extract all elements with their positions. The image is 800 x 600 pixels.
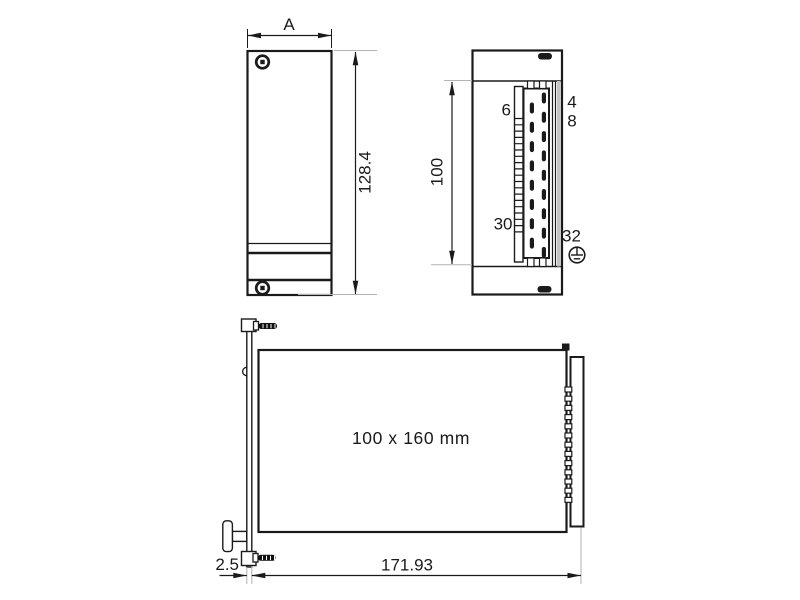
connector-pin-profile xyxy=(565,442,572,447)
connector-pin-profile xyxy=(565,424,572,429)
handle-stem xyxy=(232,531,246,541)
connector-pin-profile xyxy=(565,396,572,401)
connector-pin xyxy=(530,122,534,133)
connector-pin xyxy=(542,228,546,239)
dimension-front-width-label: A xyxy=(283,15,295,34)
front-panel-outline xyxy=(248,51,332,295)
board-size-label: 100 x 160 mm xyxy=(352,428,470,448)
connector-pin xyxy=(530,218,534,229)
pin-label-30: 30 xyxy=(494,215,513,234)
dimension-panel-thickness-label: 2.5 xyxy=(215,555,239,574)
earth-ground-icon xyxy=(569,247,585,263)
connector-mount-tab-bottom-1 xyxy=(528,258,535,267)
connector-pin-profile xyxy=(565,451,572,456)
connector-pin-profile xyxy=(565,405,572,410)
pin-label-6: 6 xyxy=(502,101,511,120)
connector-pin xyxy=(542,208,546,219)
dimension-side-height-label: 100 xyxy=(428,158,447,186)
screw-side-top-icon xyxy=(538,53,552,60)
connector-mount-tab-top-2 xyxy=(540,81,547,89)
dimension-front-width: A xyxy=(248,15,332,48)
extraction-handle xyxy=(223,521,233,552)
technical-drawing-canvas: A 128.4 6 30 4 8 32 xyxy=(0,0,800,600)
dimension-module-length-label: 171.93 xyxy=(381,556,433,575)
connector-pin xyxy=(542,93,546,104)
dimension-side-height: 100 xyxy=(428,81,473,265)
connector-contact-strip xyxy=(515,87,524,263)
panel-screw-top-icon xyxy=(254,322,278,331)
side-connector-pins-right xyxy=(542,93,546,258)
panel-screw-bottom-icon xyxy=(253,554,276,563)
connector-pin xyxy=(530,180,534,191)
connector-mount-tab-bottom-2 xyxy=(540,258,547,267)
connector-pin xyxy=(542,170,546,181)
connector-pin xyxy=(542,112,546,123)
connector-pin-profile xyxy=(565,461,572,466)
connector-pin xyxy=(530,160,534,171)
guide-tab xyxy=(562,344,570,351)
dimension-module-length: 171.93 xyxy=(252,528,581,584)
pin-label-32: 32 xyxy=(562,227,581,246)
connector-pin-profile xyxy=(565,488,572,493)
connector-side-view: 6 30 4 8 32 xyxy=(473,51,585,295)
connector-pin xyxy=(542,150,546,161)
connector-pin-profile xyxy=(565,433,572,438)
connector-pin-profile xyxy=(565,470,572,475)
connector-pin xyxy=(530,238,534,249)
pin-label-4: 4 xyxy=(567,93,576,112)
connector-pin xyxy=(530,103,534,114)
connector-pin xyxy=(542,189,546,200)
front-panel-profile xyxy=(247,320,252,567)
dimension-front-height-label: 128.4 xyxy=(356,151,375,194)
screw-head-bottom-icon xyxy=(256,282,269,295)
pin-label-8: 8 xyxy=(567,112,576,131)
connector-pin xyxy=(530,199,534,210)
connector-pin-profile xyxy=(565,479,572,484)
connector-pin-profile xyxy=(565,415,572,420)
front-panel-view xyxy=(248,51,332,295)
rear-connector-profile xyxy=(571,357,584,527)
connector-pin xyxy=(542,131,546,142)
screw-head-top-icon xyxy=(256,56,269,69)
connector-pin-profile xyxy=(565,387,572,392)
connector-pin xyxy=(530,141,534,152)
connector-pin xyxy=(542,247,546,258)
connector-pin-profile xyxy=(565,497,572,502)
module-profile-view: 100 x 160 mm xyxy=(223,319,584,567)
connector-mount-tab-top-1 xyxy=(528,81,535,89)
screw-side-bottom-icon xyxy=(538,286,552,293)
